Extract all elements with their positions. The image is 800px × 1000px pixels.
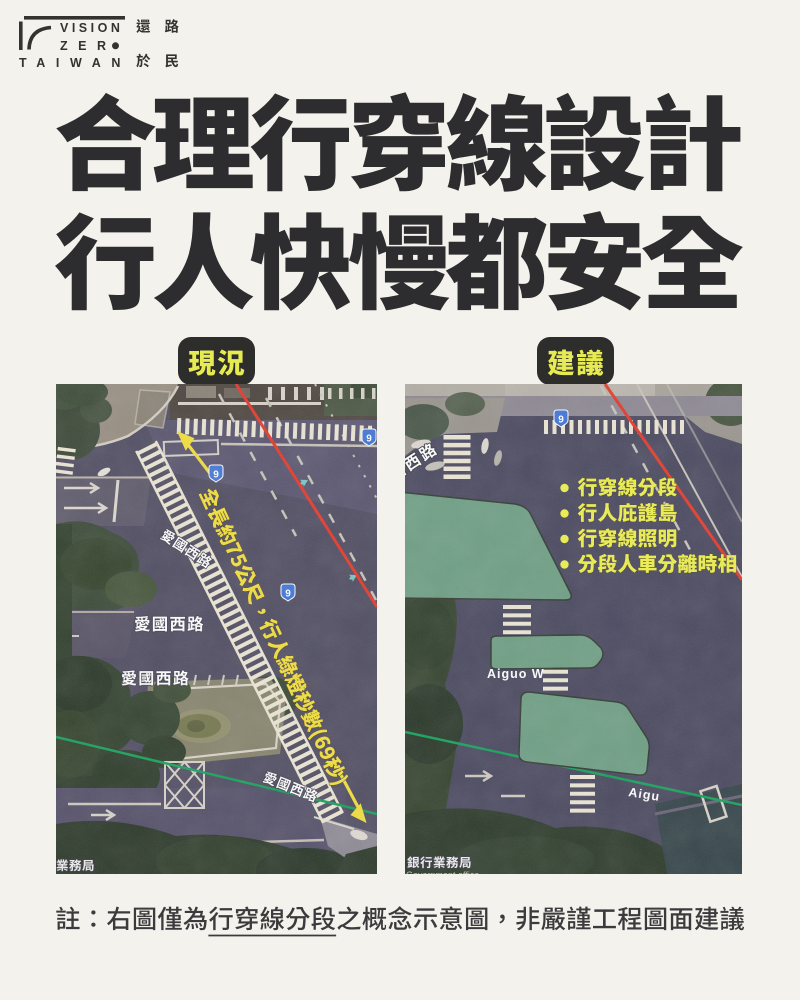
svg-text:TAIWAN: TAIWAN xyxy=(19,56,131,70)
svg-text:VISION: VISION xyxy=(60,21,123,35)
svg-text:ZER: ZER xyxy=(60,39,117,53)
